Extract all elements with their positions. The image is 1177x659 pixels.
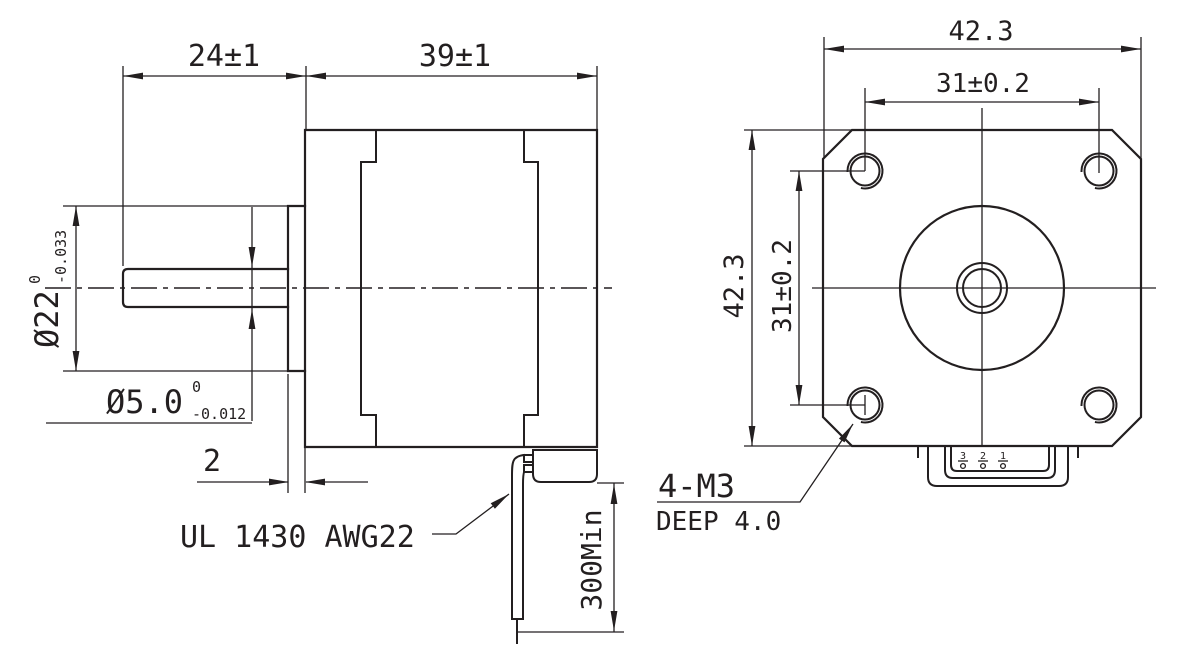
lead-wire: [512, 455, 524, 643]
stepper-motor-dimension-drawing: 24±1 39±1 Ø22 0 -0.033 Ø5.0 0 -0.012 2 U…: [0, 0, 1177, 659]
dim-wire-length: 300Min: [575, 509, 608, 610]
lead-wire-label: UL 1430 AWG22: [180, 520, 415, 555]
thread-arc: [1082, 387, 1117, 422]
connector-side: [533, 450, 597, 482]
hole-spacing-v-dimension-lines: [790, 171, 865, 415]
pin-3-hole: [961, 464, 966, 469]
connector-wire-tabs: [524, 455, 533, 472]
pilot-thickness-dimension-lines: [197, 374, 368, 493]
front-view: 3 2 1: [812, 108, 1156, 486]
front-centerlines: [812, 108, 1156, 447]
pilot-dia-main: Ø22: [28, 290, 66, 348]
connector-pin-2: 2: [978, 451, 988, 468]
side-view-dimensions: 24±1 39±1 Ø22 0 -0.033 Ø5.0 0 -0.012 2 U…: [26, 39, 624, 632]
dim-shaft-length: 24±1: [188, 39, 260, 74]
lead-wire-leader-arrow: [491, 494, 509, 509]
pilot-dia-lower-tol: -0.033: [52, 230, 70, 284]
connector-pin-1: 1: [998, 451, 1008, 468]
drawing-canvas: 24±1 39±1 Ø22 0 -0.033 Ø5.0 0 -0.012 2 U…: [0, 0, 1177, 659]
connector-pin-3: 3: [958, 451, 968, 468]
pin-1-hole: [1001, 464, 1006, 469]
dim-hole-spacing-horizontal: 31±0.2: [936, 69, 1030, 99]
mounting-note-line2: DEEP 4.0: [656, 507, 781, 537]
shaft-dia-upper-tol: 0: [192, 378, 201, 396]
dim-body-width: 42.3: [948, 16, 1013, 47]
dim-shaft-diameter: Ø5.0: [106, 383, 183, 421]
dim-pilot-diameter: Ø22 0 -0.033: [26, 230, 70, 348]
mounting-hole-bottom-right: [1082, 387, 1117, 422]
shaft-dia-lower-tol: -0.012: [192, 405, 246, 423]
connector-shell: [928, 448, 1068, 486]
connector-front: 3 2 1: [918, 448, 1078, 486]
dim-pilot-thickness: 2: [203, 444, 221, 479]
mounting-note-line1: 4-M3: [658, 467, 735, 505]
hole-circle: [1085, 391, 1114, 420]
dim-body-length: 39±1: [419, 39, 491, 74]
pin-2-hole: [981, 464, 986, 469]
dim-body-height: 42.3: [719, 253, 750, 318]
pilot-thickness-arrows: [269, 479, 325, 486]
pilot-dia-upper-tol: 0: [26, 275, 44, 284]
dim-hole-spacing-vertical: 31±0.2: [768, 239, 798, 333]
